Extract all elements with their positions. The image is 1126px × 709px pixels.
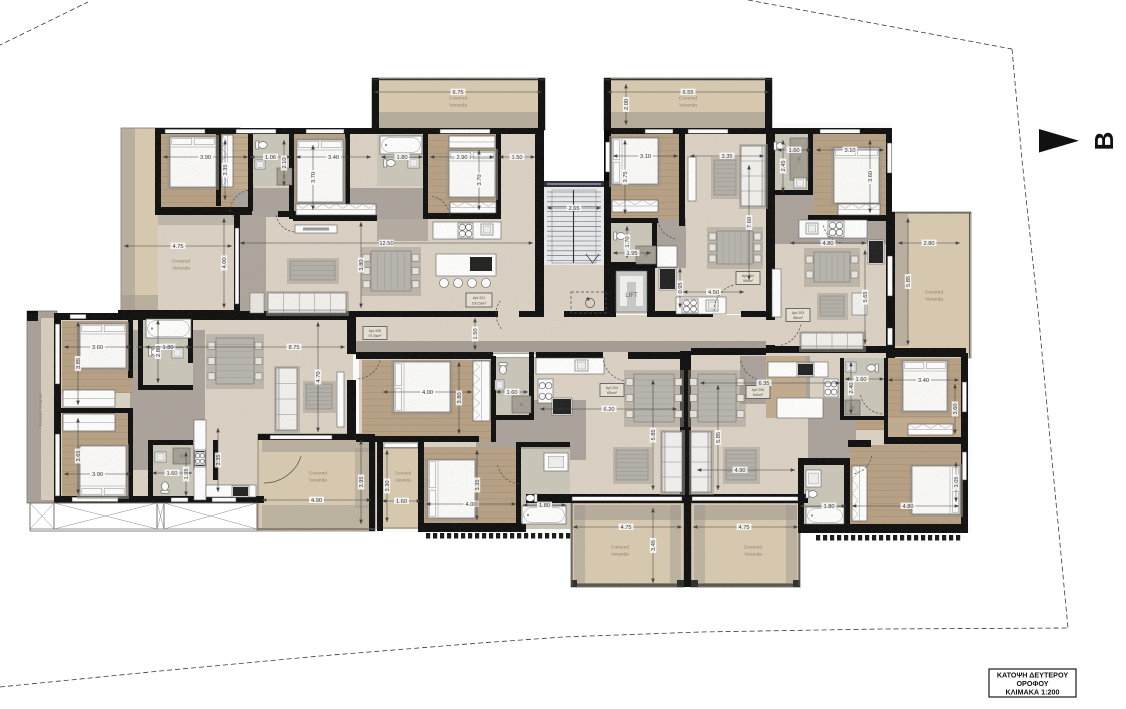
svg-text:B: B <box>1089 132 1119 151</box>
svg-text:ΚΛΙΜΑΚΑ 1:200: ΚΛΙΜΑΚΑ 1:200 <box>1006 688 1060 697</box>
